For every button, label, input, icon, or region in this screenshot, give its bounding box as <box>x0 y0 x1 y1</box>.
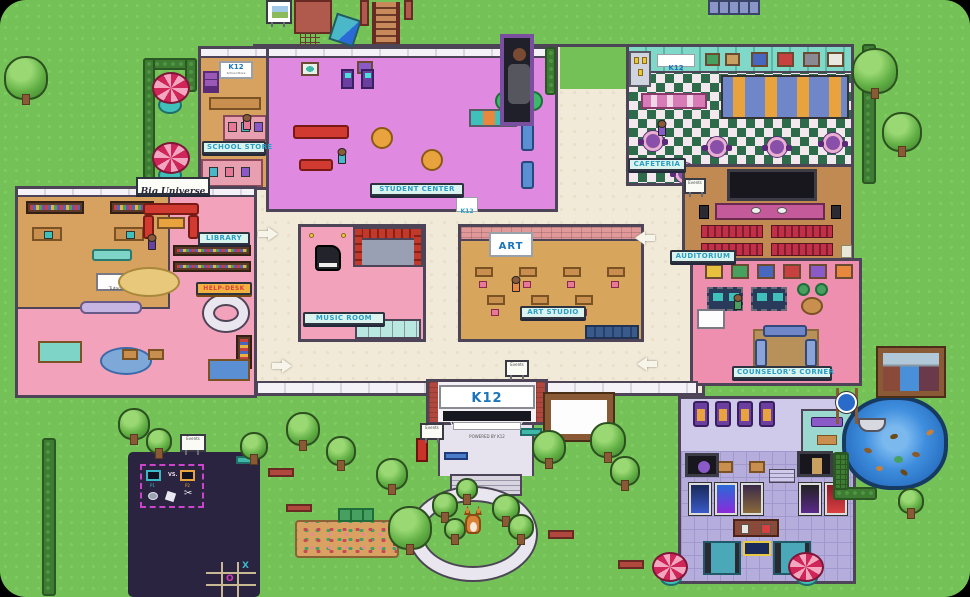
direction-arrow-right <box>282 359 299 373</box>
coffee-table <box>157 217 185 229</box>
npc-avatar[interactable] <box>243 118 251 130</box>
tree <box>240 432 268 460</box>
stool <box>567 281 575 288</box>
audience-seats[interactable] <box>771 243 833 256</box>
direction-arrow-left <box>630 357 647 371</box>
auditorium-screen <box>727 169 817 201</box>
events-board[interactable]: Events <box>180 434 206 452</box>
movie-poster <box>715 483 737 515</box>
k12-logo: K12 <box>668 64 683 72</box>
arcade-cabinet[interactable] <box>361 69 374 89</box>
art-station[interactable] <box>487 295 505 305</box>
events-label: Events <box>510 362 524 367</box>
school-store-plaque: SCHOOL STORE <box>202 141 266 154</box>
counselors-plaque: COUNSELOR'S CORNER <box>732 366 832 379</box>
playground[interactable] <box>264 0 414 48</box>
cafeteria-plaque: CAFETERIA <box>628 158 686 171</box>
lockers[interactable] <box>585 325 639 339</box>
entrance-title-band: VIRTUAL ACADEMY <box>443 411 531 421</box>
room-art[interactable]: ART <box>458 224 644 342</box>
entrance-facade: K12 VIRTUAL ACADEMY POWERED BY K12 <box>426 379 548 425</box>
table <box>717 461 733 473</box>
round-table <box>371 127 393 149</box>
audience-seats[interactable] <box>701 225 763 238</box>
wall-picture <box>751 52 768 67</box>
lily-pad <box>894 456 903 463</box>
stairs[interactable] <box>769 469 795 483</box>
ticket-gate[interactable] <box>703 541 741 575</box>
couch-blue <box>521 161 534 189</box>
now-showing-screen <box>797 451 833 477</box>
tictactoe-x: X <box>242 561 249 571</box>
climbing-net <box>300 32 320 46</box>
direction-arrow-right <box>268 227 285 241</box>
stool <box>523 281 531 288</box>
wall-picture <box>705 53 720 66</box>
tree <box>852 48 898 94</box>
garden-plots <box>338 508 374 522</box>
audience-seats[interactable] <box>771 225 833 238</box>
whiteboard[interactable] <box>697 309 725 329</box>
boat <box>858 418 886 432</box>
art-station[interactable] <box>475 267 493 277</box>
exit-board <box>841 245 852 258</box>
globe-picture <box>301 62 319 76</box>
npc-avatar[interactable] <box>338 152 346 164</box>
hedge <box>545 47 556 95</box>
south-wall <box>256 381 428 395</box>
speaker <box>699 205 709 219</box>
events-label: Events <box>688 180 702 185</box>
tree <box>118 408 150 440</box>
food-counter[interactable] <box>641 93 707 109</box>
bookshelf <box>173 261 251 272</box>
round-table <box>801 297 823 315</box>
computer-pod[interactable] <box>751 287 787 311</box>
big-universe-label: Big Universe <box>141 187 206 197</box>
store-counter <box>209 97 261 110</box>
slide <box>328 13 361 48</box>
cafeteria-table[interactable] <box>767 137 787 157</box>
tree <box>532 430 566 464</box>
music-room-plaque: MUSIC ROOM <box>303 312 385 325</box>
table <box>749 461 765 473</box>
lawn[interactable]: K12 School Store SCHOOL STORE <box>0 0 970 597</box>
trellis <box>833 452 849 490</box>
hedge <box>42 438 56 596</box>
couch-blue <box>763 325 807 337</box>
entrance-sign: K12 <box>439 385 535 409</box>
movie-poster <box>689 483 711 515</box>
fish <box>876 466 883 471</box>
couch-blue <box>521 123 534 151</box>
paper-icon <box>165 491 176 502</box>
south-wall <box>546 381 698 395</box>
store-wall-sub: School Store <box>221 71 251 75</box>
entrance-subtitle: POWERED BY K12 <box>469 434 505 439</box>
art-sign-label: ART <box>499 241 524 252</box>
stool <box>491 309 499 316</box>
wall-picture <box>803 52 820 67</box>
concession-counter[interactable] <box>733 519 779 537</box>
flower-garden[interactable] <box>295 520 399 558</box>
k12-wall-poster: K12 <box>456 197 478 212</box>
help-desk[interactable] <box>204 295 248 331</box>
npc-avatar[interactable] <box>512 280 520 292</box>
patio-umbrella <box>152 72 190 104</box>
art-station[interactable] <box>575 295 593 305</box>
stage <box>715 203 825 220</box>
reading-rug <box>118 267 180 297</box>
events-board[interactable]: Events <box>505 360 529 377</box>
game-mat[interactable]: P1 VS. P2 ✂ X O <box>128 452 260 597</box>
pond-sign <box>834 388 860 426</box>
plant <box>797 283 810 296</box>
p1-screen <box>146 470 161 481</box>
k12-logo: K12 <box>461 208 474 215</box>
crates <box>203 71 219 93</box>
gaming-pod[interactable] <box>737 401 753 427</box>
post <box>404 0 413 20</box>
fish <box>912 451 921 457</box>
big-universe-sign: Big Universe <box>136 177 210 195</box>
auditorium-plaque: AUDITORIUM <box>670 250 736 263</box>
vs-label: VS. <box>168 472 177 478</box>
versus-panel: P1 VS. P2 ✂ <box>140 464 204 508</box>
bench[interactable] <box>548 530 574 539</box>
events-label: Events <box>425 425 439 430</box>
computer-desk[interactable] <box>32 227 62 241</box>
art-station[interactable] <box>607 267 625 277</box>
patio-umbrella <box>152 142 190 174</box>
tictactoe-board[interactable]: X O <box>206 562 256 597</box>
fox-mascot[interactable] <box>462 506 484 536</box>
scissors-icon: ✂ <box>184 488 192 499</box>
tree <box>508 514 534 540</box>
student-center-plaque: STUDENT CENTER <box>370 183 464 196</box>
wall-picture <box>835 264 853 279</box>
grass-notch <box>560 47 626 89</box>
gaming-pod[interactable] <box>715 401 731 427</box>
fish <box>925 428 934 436</box>
wall-picture <box>757 264 775 279</box>
tree <box>388 506 432 550</box>
cafeteria-table[interactable] <box>823 133 843 153</box>
bookshelf <box>173 245 251 256</box>
store-wall-sign: K12 School Store <box>219 61 253 79</box>
grand-piano[interactable] <box>315 245 341 271</box>
rock-icon <box>148 492 158 500</box>
tree <box>4 56 48 100</box>
ladder <box>372 2 400 44</box>
bench[interactable] <box>268 468 294 477</box>
events-board[interactable]: Events <box>420 423 444 440</box>
marquee-sign <box>743 541 771 556</box>
couch-blue <box>805 339 817 367</box>
study-desk[interactable] <box>208 359 250 381</box>
study-desk[interactable] <box>122 349 138 360</box>
reception-desk <box>80 301 142 314</box>
p2-screen <box>180 470 195 481</box>
bench[interactable] <box>286 504 312 512</box>
wall-picture <box>827 52 844 67</box>
art-sign: ART <box>489 232 533 257</box>
stanchion <box>341 233 346 238</box>
library-plaque: LIBRARY <box>198 232 250 245</box>
post <box>360 0 369 26</box>
fish <box>899 468 908 477</box>
art-station[interactable] <box>563 267 581 277</box>
stage <box>353 227 423 267</box>
stool <box>479 281 487 288</box>
wall-picture <box>731 264 749 279</box>
now-showing-screen <box>685 453 719 477</box>
playground-sign <box>266 0 292 24</box>
wall <box>201 49 267 58</box>
plant <box>815 283 828 296</box>
bookshelf <box>26 201 84 214</box>
art-station[interactable] <box>519 267 537 277</box>
entrance-subplaque: POWERED BY K12 <box>453 422 521 430</box>
trophy-case <box>629 51 651 87</box>
tree <box>376 458 408 490</box>
k12-logo: K12 <box>221 63 251 71</box>
couch-red <box>293 125 349 139</box>
bench[interactable] <box>444 452 468 460</box>
round-table <box>421 149 443 171</box>
npc-avatar[interactable] <box>658 124 666 136</box>
clothing-rack <box>201 159 263 187</box>
gaming-pod[interactable] <box>693 401 709 427</box>
events-label: Events <box>186 436 200 441</box>
couch-teal <box>92 249 132 261</box>
arcade-cabinet[interactable] <box>341 69 354 89</box>
booths[interactable] <box>721 75 849 119</box>
tree <box>326 436 356 466</box>
wall-picture <box>783 264 801 279</box>
small-couch <box>299 159 333 171</box>
cafeteria-k12-sign: K12 <box>657 54 695 67</box>
npc-avatar[interactable] <box>148 238 156 250</box>
wall-picture <box>809 264 827 279</box>
tree <box>146 428 172 454</box>
wall-picture <box>777 52 794 67</box>
study-table[interactable] <box>38 341 82 363</box>
virtual-campus-map: K12 School Store SCHOOL STORE <box>0 0 970 597</box>
tree <box>898 488 924 514</box>
cafeteria-table[interactable] <box>707 137 727 157</box>
speaker <box>831 205 841 219</box>
stool <box>611 281 619 288</box>
patio-umbrella <box>788 552 824 582</box>
events-board[interactable]: Events <box>684 178 706 194</box>
play-tower <box>294 0 332 34</box>
tree <box>286 412 320 446</box>
direction-arrow-left <box>628 231 645 245</box>
staff-portrait <box>500 34 534 126</box>
art-wall <box>461 227 641 241</box>
tree <box>432 492 458 518</box>
art-station[interactable] <box>531 295 549 305</box>
study-desk[interactable] <box>148 349 164 360</box>
fish <box>889 433 898 440</box>
couch-red <box>143 203 199 215</box>
couch-blue <box>755 339 767 367</box>
gaming-pod[interactable] <box>759 401 775 427</box>
art-studio-plaque: ART STUDIO <box>520 306 586 319</box>
room-school-store[interactable]: K12 School Store <box>198 46 270 190</box>
canal-painting <box>878 348 944 396</box>
bench[interactable] <box>618 560 644 569</box>
fish <box>863 447 872 454</box>
p1-label: P1 <box>150 483 155 488</box>
tree <box>610 456 640 486</box>
help-desk-plaque: HELP-DESK <box>196 282 252 295</box>
room-auditorium[interactable] <box>682 164 854 262</box>
room-rec-theater[interactable] <box>678 396 856 584</box>
bike-rack <box>708 0 760 15</box>
wall-picture <box>705 264 723 279</box>
movie-poster <box>741 483 763 515</box>
tree <box>590 422 626 458</box>
tree <box>456 478 478 500</box>
computer-desk[interactable] <box>114 227 144 241</box>
npc-avatar[interactable] <box>734 298 742 310</box>
k12-logo-large: K12 <box>471 391 502 406</box>
stanchion <box>309 233 314 238</box>
wall-picture <box>725 53 740 66</box>
patio-umbrella <box>652 552 688 582</box>
movie-poster <box>799 483 821 515</box>
tictactoe-o: O <box>226 574 234 584</box>
tree <box>882 112 922 152</box>
